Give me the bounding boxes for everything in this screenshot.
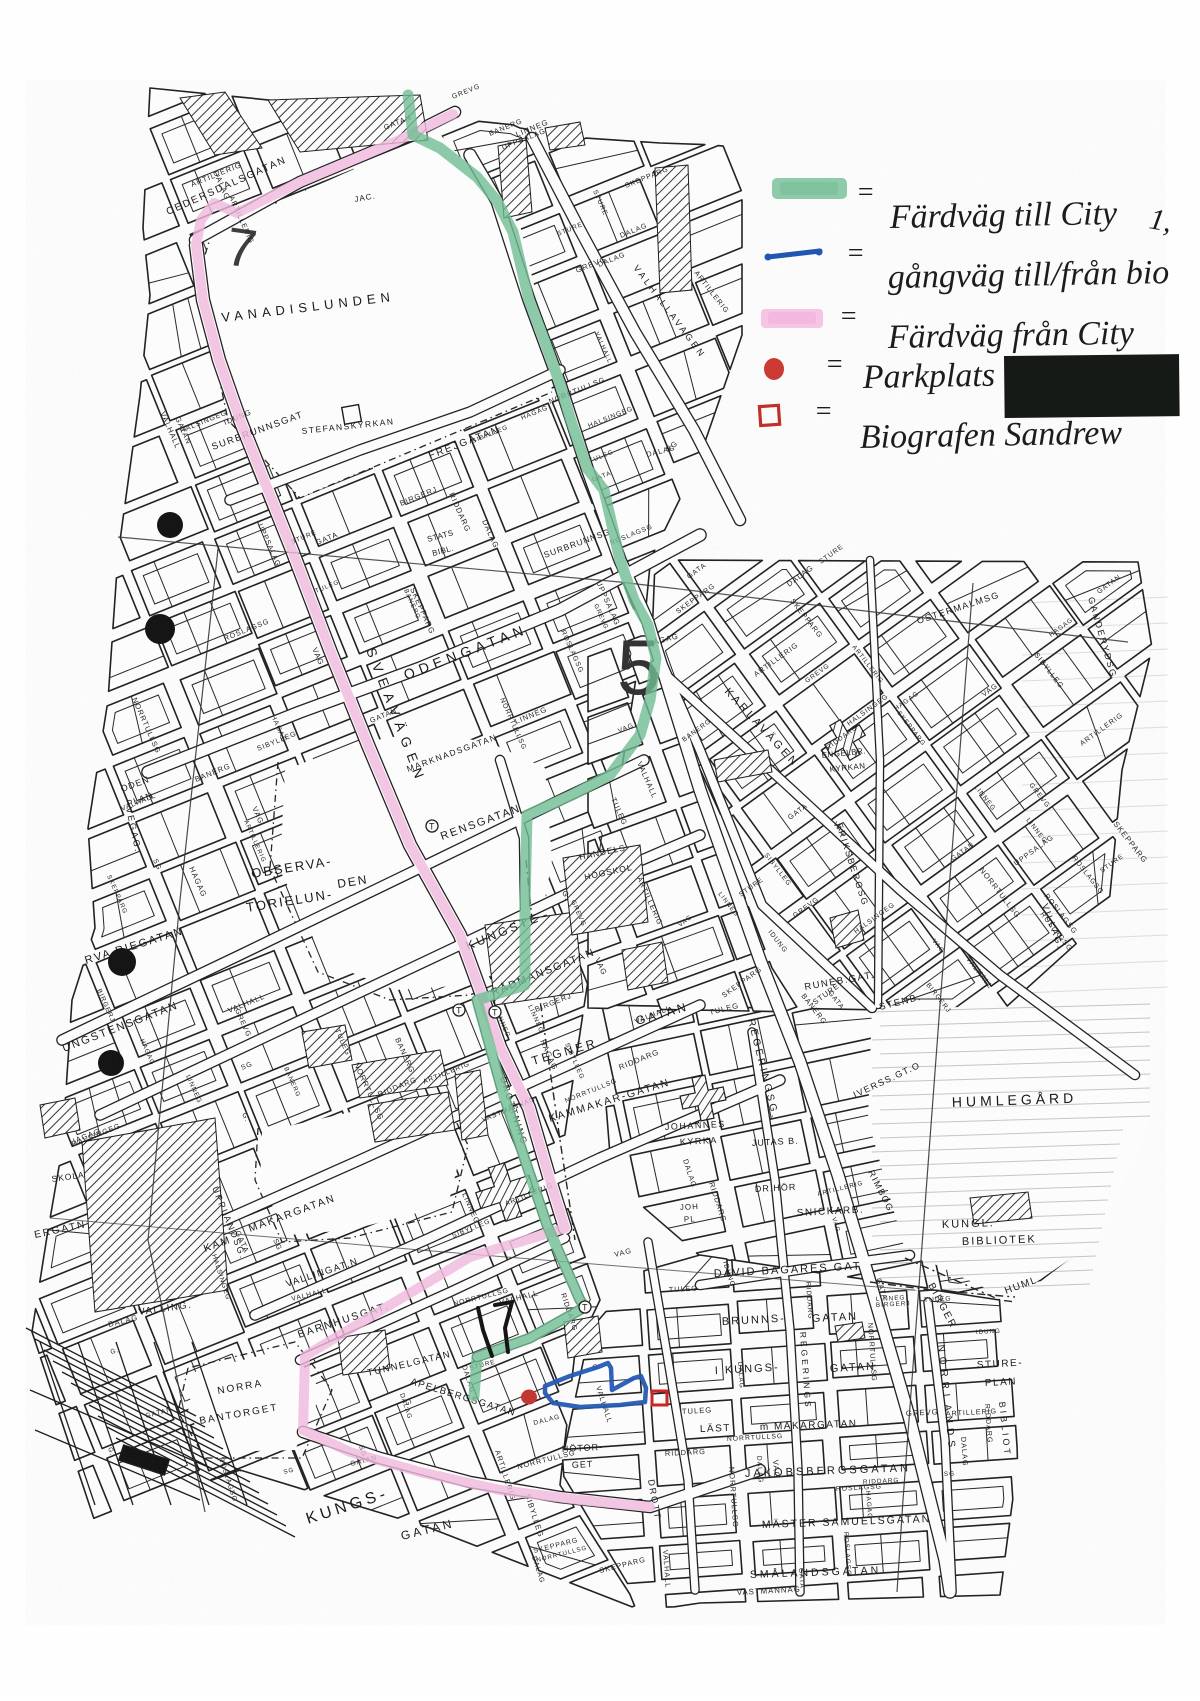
svg-text:=: = — [856, 177, 875, 208]
svg-text:=: = — [839, 301, 858, 332]
svg-text:Färdväg från City: Färdväg från City — [886, 315, 1135, 356]
svg-text:=: = — [814, 396, 833, 427]
svg-text:=: = — [846, 238, 865, 269]
svg-text:Parkplats: Parkplats — [861, 357, 995, 396]
svg-text:Biografen Sandrew: Biografen Sandrew — [859, 414, 1122, 456]
svg-text:=: = — [825, 349, 844, 380]
svg-text:Färdväg till City: Färdväg till City — [888, 195, 1118, 236]
svg-text:gångväg till/från bio: gångväg till/från bio — [887, 254, 1169, 296]
